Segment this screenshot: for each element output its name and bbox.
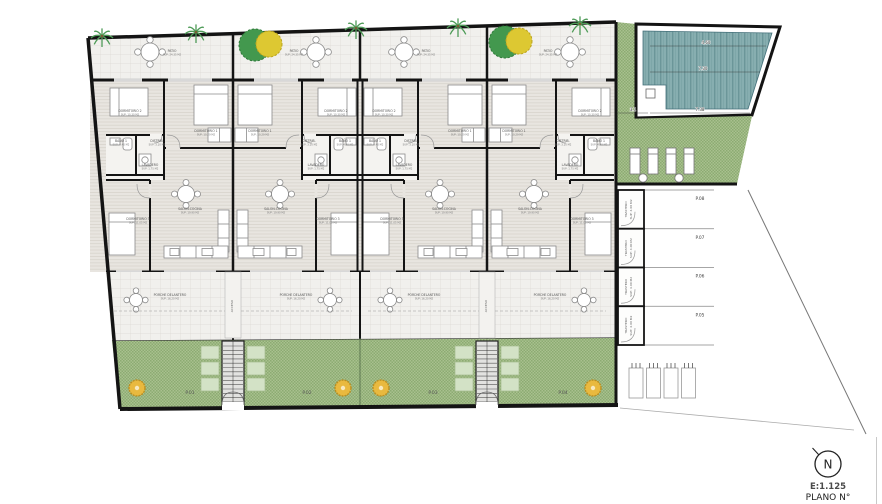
- planter: [455, 362, 473, 375]
- plan-sheet: 4.60 7.30 3.1 7.38 P.01P.02P.03P.04: [0, 0, 882, 504]
- lavadero-label: LAVADERO: [142, 163, 159, 167]
- trastero-room: TRASTEROSUP: 4.00 M2: [618, 268, 644, 307]
- lavadero-sup: SUP: 1.75 M2: [142, 167, 159, 171]
- patio-sup: SUP: 24.35 M2: [163, 53, 182, 57]
- porche-sup: SUP: 16.20 M2: [415, 297, 434, 301]
- gate-opening: [476, 402, 498, 410]
- trastero-label: TRASTERO: [624, 240, 628, 258]
- parking-label: P.08: [696, 196, 705, 202]
- salon-cocina-label: SALON-COCINA: [518, 207, 543, 211]
- units-layer: [106, 80, 614, 272]
- garden-tree: [129, 380, 145, 396]
- parking-label: P.05: [696, 312, 705, 318]
- dormitorio1-sup: SUP: 10.29 M2: [505, 133, 524, 137]
- parking-space: [629, 363, 643, 398]
- planter: [501, 362, 519, 375]
- lavadero-label: LAVADERO: [562, 163, 579, 167]
- patio-label: PATIO: [422, 49, 431, 53]
- scale-text: E:1.125: [810, 482, 846, 492]
- salon-cocina-sup: SUP: 19.90 M2: [267, 211, 286, 215]
- garden-strip: [112, 338, 616, 409]
- lavadero-sup: SUP: 1.75 M2: [562, 167, 579, 171]
- distribuidor-label: DISTRIB.: [556, 139, 569, 143]
- distribuidor-sup: SUP: 3.10 M2: [555, 143, 572, 147]
- pool-dim-bottom: 7.38: [696, 107, 705, 112]
- lavadero-label: LAVADERO: [396, 163, 413, 167]
- trastero-sup: SUP: 4.00 M2: [629, 277, 633, 297]
- salon-cocina-label: SALON-COCINA: [178, 207, 203, 211]
- lavadero-sup: SUP: 1.75 M2: [396, 167, 413, 171]
- plano-text: PLANO N°: [806, 493, 851, 503]
- dormitorio2-sup: SUP: 10.30 M2: [581, 113, 600, 117]
- parcel-label: P.01: [185, 390, 194, 396]
- bano1-label: BAÑO 1: [115, 138, 127, 143]
- lavadero-sup: SUP: 1.75 M2: [308, 167, 325, 171]
- porche-strip: [106, 272, 616, 341]
- parcel-label: P.02: [302, 390, 311, 396]
- dormitorio2-sup: SUP: 10.30 M2: [327, 113, 346, 117]
- patio-sup: SUP: 24.35 M2: [417, 53, 436, 57]
- access-label: ACCESO: [484, 299, 488, 312]
- floor-plan: 4.60 7.30 3.1 7.38 P.01P.02P.03P.04: [0, 0, 882, 504]
- porche-label: PORCHE DELANTERO: [534, 293, 567, 297]
- patio-sup: SUP: 24.35 M2: [285, 53, 304, 57]
- bano1-sup: SUP: 4.40 M2: [113, 143, 130, 147]
- north-letter: N: [824, 458, 833, 472]
- distribuidor-label: DISTRIB.: [150, 139, 163, 143]
- parking-label: P.07: [696, 235, 705, 241]
- dormitorio3-label: DORMITORIO 3: [380, 217, 403, 221]
- patio-sup: SUP: 24.35 M2: [539, 53, 558, 57]
- distribuidor-sup: SUP: 3.10 M2: [149, 143, 166, 147]
- dormitorio1-label: DORMITORIO 1: [502, 129, 525, 133]
- parcel-label: P.03: [428, 390, 437, 396]
- lavadero-label: LAVADERO: [308, 163, 325, 167]
- dormitorio1-sup: SUP: 10.29 M2: [451, 133, 470, 137]
- porche-sup: SUP: 16.20 M2: [541, 297, 560, 301]
- pool-dim-left: 3.1: [630, 107, 637, 112]
- dormitorio2-label: DORMITORIO 2: [118, 109, 141, 113]
- garden-tree: [585, 380, 601, 396]
- north-arrow: N: [813, 448, 842, 477]
- porche-sup: SUP: 16.20 M2: [287, 297, 306, 301]
- dormitorio2-label: DORMITORIO 2: [324, 109, 347, 113]
- planter: [247, 362, 265, 375]
- dormitorio3-sup: SUP: 11.05 M2: [573, 221, 592, 225]
- salon-cocina-sup: SUP: 19.90 M2: [435, 211, 454, 215]
- dormitorio2-label: DORMITORIO 2: [578, 109, 601, 113]
- trastero-label: TRASTERO: [624, 278, 628, 296]
- dormitorio1-label: DORMITORIO 1: [448, 129, 471, 133]
- parking-label: P.06: [696, 274, 705, 280]
- patio-label: PATIO: [290, 49, 299, 53]
- pool: 4.60 7.30 3.1 7.38: [618, 24, 780, 118]
- salon-cocina-label: SALON-COCINA: [264, 207, 289, 211]
- dormitorio1-label: DORMITORIO 1: [194, 129, 217, 133]
- gate-opening: [222, 402, 244, 410]
- trastero-room: TRASTEROSUP: 4.00 M2: [618, 190, 644, 229]
- bano1-label: BAÑO 1: [339, 138, 351, 143]
- dormitorio3-sup: SUP: 11.05 M2: [383, 221, 402, 225]
- dormitorio3-sup: SUP: 11.05 M2: [319, 221, 338, 225]
- trastero-label: TRASTERO: [624, 317, 628, 335]
- dormitorio2-sup: SUP: 10.30 M2: [375, 113, 394, 117]
- planter: [247, 346, 265, 359]
- planter: [201, 346, 219, 359]
- patio-label: PATIO: [544, 49, 553, 53]
- parking-space: [647, 363, 661, 398]
- right-column-layer: TRASTEROSUP: 4.00 M2P.08TRASTEROSUP: 4.0…: [618, 190, 714, 398]
- planter: [455, 346, 473, 359]
- dormitorio1-label: DORMITORIO 1: [248, 129, 271, 133]
- dormitorio2-sup: SUP: 10.30 M2: [121, 113, 140, 117]
- trastero-sup: SUP: 4.00 M2: [629, 316, 633, 336]
- trastero-sup: SUP: 4.00 M2: [629, 199, 633, 219]
- planter: [455, 378, 473, 391]
- salon-cocina-sup: SUP: 19.90 M2: [521, 211, 540, 215]
- planter: [247, 378, 265, 391]
- planter: [201, 362, 219, 375]
- dormitorio1-sup: SUP: 10.29 M2: [251, 133, 270, 137]
- bano1-label: BAÑO 1: [369, 138, 381, 143]
- dormitorio2-label: DORMITORIO 2: [372, 109, 395, 113]
- bano1-sup: SUP: 4.40 M2: [591, 143, 608, 147]
- patio-label: PATIO: [168, 49, 177, 53]
- title-block: N E:1.125 PLANO N°: [806, 437, 877, 504]
- access-label: ACCESO: [230, 299, 234, 312]
- garden-tree: [335, 380, 351, 396]
- trastero-label: TRASTERO: [624, 201, 628, 219]
- planter: [201, 378, 219, 391]
- trastero-sup: SUP: 4.00 M2: [629, 238, 633, 258]
- bano1-label: BAÑO 1: [593, 138, 605, 143]
- dormitorio3-sup: SUP: 11.05 M2: [129, 221, 148, 225]
- dormitorio3-label: DORMITORIO 3: [126, 217, 149, 221]
- trastero-room: TRASTEROSUP: 4.00 M2: [618, 306, 644, 345]
- pool-platform: [646, 89, 655, 98]
- salon-cocina-label: SALON-COCINA: [432, 207, 457, 211]
- distribuidor-sup: SUP: 3.10 M2: [301, 143, 318, 147]
- parcel-label: P.04: [558, 390, 567, 396]
- dormitorio3-label: DORMITORIO 3: [316, 217, 339, 221]
- parking-space: [682, 363, 696, 398]
- bano1-sup: SUP: 4.40 M2: [337, 143, 354, 147]
- porche-sup: SUP: 16.20 M2: [161, 297, 180, 301]
- dormitorio3-label: DORMITORIO 3: [570, 217, 593, 221]
- bano1-sup: SUP: 4.40 M2: [367, 143, 384, 147]
- garden-tree: [373, 380, 389, 396]
- trastero-room: TRASTEROSUP: 4.00 M2: [618, 229, 644, 268]
- porche-label: PORCHE DELANTERO: [408, 293, 441, 297]
- distribuidor-label: DISTRIB.: [302, 139, 315, 143]
- porche-label: PORCHE DELANTERO: [154, 293, 187, 297]
- pool-dim-top: 4.60: [702, 40, 711, 45]
- distribuidor-sup: SUP: 3.10 M2: [403, 143, 420, 147]
- distribuidor-label: DISTRIB.: [404, 139, 417, 143]
- porche-label: PORCHE DELANTERO: [280, 293, 313, 297]
- parking-space: [664, 363, 678, 398]
- pool-dim-mid: 7.30: [699, 66, 708, 71]
- planter: [501, 346, 519, 359]
- pool-zone: 4.60 7.30 3.1 7.38: [616, 22, 780, 185]
- salon-cocina-sup: SUP: 19.90 M2: [181, 211, 200, 215]
- planter: [501, 378, 519, 391]
- dormitorio1-sup: SUP: 10.29 M2: [197, 133, 216, 137]
